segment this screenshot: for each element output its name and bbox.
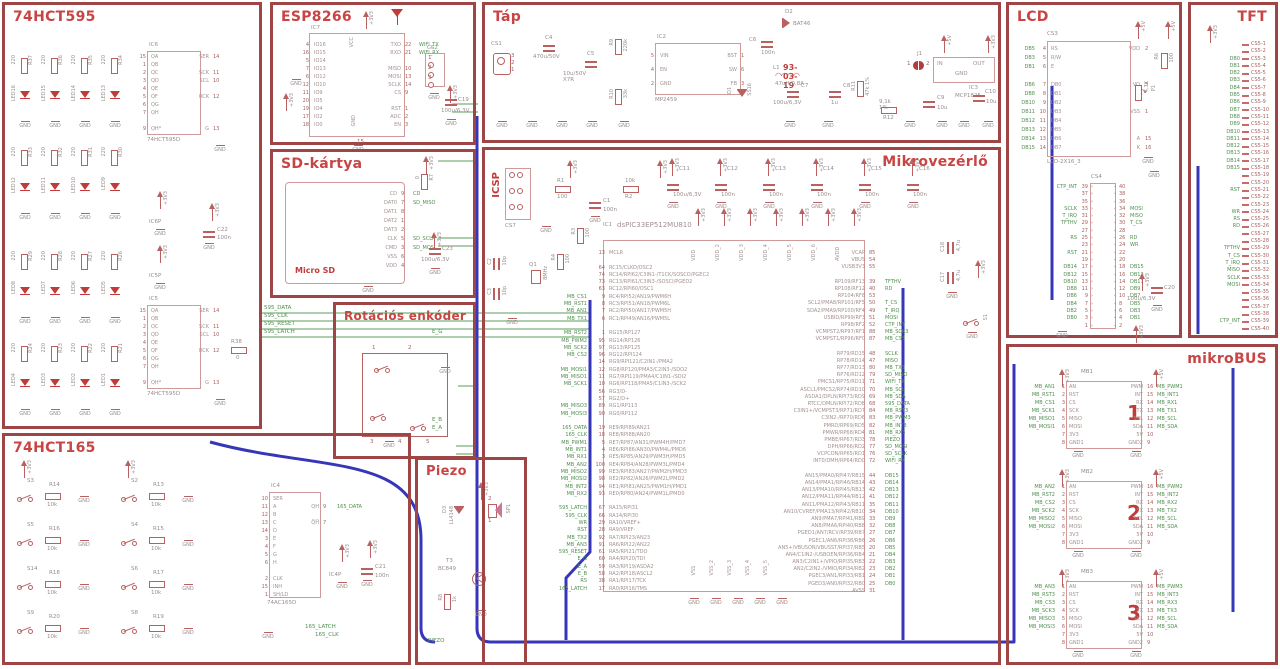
resistor-value: 10k: [151, 634, 161, 640]
gnd-symbol: GND: [953, 121, 975, 129]
pin-row: VCMPST2/RP97/RF188MB_SCK3: [745, 329, 945, 336]
cap-value: 10u: [986, 99, 996, 105]
cs1: CS1 3 2 1: [493, 53, 511, 75]
pin-row: RP104/RF853: [745, 293, 945, 300]
net-label: 595_RESET: [541, 549, 589, 556]
power-3v3-icon: +3V3: [971, 260, 987, 286]
cap-ref: C10: [985, 89, 996, 95]
pin-name: [285, 527, 321, 535]
pin-row: MB_AN391RA6/RPI22/AN22: [541, 542, 773, 549]
pin-number: 35: [1077, 199, 1089, 206]
c23: +3V3 C23 100u/6,3V GND: [429, 248, 441, 255]
ic-right-pins: SER14SCK11SCL10RCK12G13: [171, 307, 227, 387]
pin-name: IN: [937, 61, 943, 67]
resistor-value: 220: [71, 147, 77, 157]
gnd-symbol: GND: [177, 628, 199, 636]
pin-number: 14: [1118, 279, 1130, 286]
net-label: DB1: [1015, 63, 1035, 72]
net-label: DB1: [883, 573, 945, 580]
net-label: 595_CLK: [264, 312, 295, 320]
pin-number: 1: [1055, 483, 1066, 491]
resistor-value: 220: [41, 55, 47, 65]
pin-row: RSCS5-25: [1193, 216, 1277, 223]
pin-row: DB03›‹4DB1: [1043, 315, 1179, 322]
pin-name: C3IN2-/RP70/RD6: [745, 415, 867, 422]
pin-number: 43: [867, 480, 883, 487]
pin-row: USBID/RP99/RF351MOSI: [745, 315, 945, 322]
pad-icon: [1242, 168, 1249, 170]
net-label: MISO: [1130, 213, 1170, 220]
resistor-icon: [555, 186, 571, 193]
net-label: MB_RST1: [541, 301, 589, 308]
ic6: IC6 15QA1QB2QC3QD4QE5QF6QG7QH9QH* SER14S…: [135, 51, 259, 151]
net-label: DB6: [1193, 99, 1240, 106]
net-label: SD_SCLK: [883, 451, 945, 458]
net-label: CTP_INT: [1193, 318, 1240, 325]
pin-row: DB1215›‹16DB13: [1043, 272, 1179, 279]
pin-row: 8GND1GND29: [1009, 539, 1277, 547]
net-label: [541, 323, 589, 330]
r7: +3V3 0 R7: [421, 174, 428, 190]
pin-number: 72: [867, 458, 883, 465]
resistor-ref: R2: [625, 194, 632, 200]
pin-row: 73RC13/RPI61/C3IN3-/SOSCI/PGED2: [541, 279, 773, 286]
pin-row: MB_MOSI26MOSISDA11MB_SDA: [1009, 523, 1277, 531]
net-label: MB_TX2: [1157, 507, 1203, 515]
gnd-symbol: GND: [771, 598, 793, 606]
resistor-icon: [21, 254, 28, 270]
pin-number: 20: [295, 97, 311, 105]
net-label: WR: [1130, 242, 1170, 249]
pin-number: [211, 339, 227, 347]
pin-row: CS5-35: [1193, 289, 1277, 296]
net-label: MB_AN1: [1009, 383, 1055, 391]
pin-row: MB_MOSI36MOSISDA11MB_SDA: [1009, 623, 1277, 631]
pin-name: IO10: [311, 81, 326, 89]
cap-value: 100u/6,3V: [673, 192, 701, 198]
switch-ref: S9: [27, 610, 34, 616]
pin-number: 16: [1146, 483, 1157, 491]
q1: Q1 8MHz: [531, 270, 541, 284]
pad-icon: [1242, 117, 1249, 119]
pad-icon: [1242, 306, 1249, 308]
pad-icon: [1242, 87, 1249, 89]
cap-value: 100n: [761, 50, 775, 56]
capacitor-icon: [973, 95, 985, 102]
pin-number: CS5-26: [1251, 223, 1277, 230]
pin-number: 5: [135, 93, 148, 101]
cap-ref: C14: [823, 166, 834, 172]
resistor-icon: [21, 58, 28, 74]
pin-number: 12: [211, 93, 227, 101]
pin-row: DB1413DB6A15: [1015, 135, 1157, 144]
pin-number: 4: [1035, 45, 1048, 54]
pin-number: [211, 117, 227, 125]
net-label: [883, 343, 945, 350]
pin-name: C: [270, 519, 277, 527]
pin-number: 28: [1118, 228, 1130, 235]
pin-name: DB0: [1048, 81, 1077, 90]
net-label: MB_TX1: [1157, 407, 1203, 415]
pin-row: RP108/RF1240RD: [745, 286, 945, 293]
net-label: WIFI_RX: [883, 458, 945, 465]
block-74hct595: 74HCT595 220R37LED16GND220R36LED15GND220…: [2, 2, 262, 429]
pin-row: [285, 527, 409, 535]
pin-name: 5V: [1119, 631, 1146, 639]
c9: C9 10u: [923, 101, 935, 108]
net-label: PIEZO: [883, 437, 945, 444]
pin-number: 66: [589, 513, 607, 520]
net-label: DB14: [1193, 158, 1240, 165]
net-label: [1193, 289, 1240, 296]
net-label: MB_CS1: [1009, 399, 1055, 407]
pin-number: 27: [867, 530, 883, 537]
net-label: DB15: [1193, 165, 1240, 172]
transistor-name: BC849: [438, 566, 456, 572]
trimmer-value: 4,7K: [1144, 81, 1150, 92]
pin-name: RP108/RF12: [745, 286, 867, 293]
pin-name: MOSI: [343, 73, 403, 81]
pin-name: D: [270, 527, 277, 535]
pin-name: TX: [1119, 407, 1146, 415]
pin-row: DAT21: [285, 217, 475, 226]
pin-number: 10: [403, 65, 417, 73]
pin-number: 34: [1118, 206, 1130, 213]
led-ref: LED5: [101, 281, 107, 294]
gnd-symbol: GND: [1125, 551, 1147, 559]
pin-row: VCAP85: [745, 250, 945, 257]
pin-number: 14: [211, 53, 227, 61]
pin-row: DB5CS5-8: [1193, 92, 1277, 99]
pin-number: 80: [867, 365, 883, 372]
pin-name: G: [270, 551, 277, 559]
pin-number: [321, 543, 335, 551]
cap-ref: C2: [487, 258, 493, 265]
pin-number: 83: [867, 415, 883, 422]
pin-row: AN5+/VBUSON/VBUSST/RPI37/RB520DB5: [745, 545, 945, 552]
pin-number: 20: [1118, 257, 1130, 264]
pin-row: TFTHV29›‹30T_CS: [1043, 220, 1179, 227]
socket-list: +3V3 MB1 +5V 1 MB_AN11ANPWM16MB_PWM1MB_R…: [1009, 369, 1277, 669]
resistor-icon: [45, 537, 61, 544]
pin-number: 79: [867, 372, 883, 379]
net-label: [1130, 199, 1170, 206]
pin-row: CTP_INT39›‹40: [1043, 184, 1179, 191]
resistor-value: 0: [415, 176, 421, 179]
pin-row: RST28RA9/VREF-: [541, 527, 773, 534]
net-label: [1193, 311, 1240, 318]
pin-name: RX: [1119, 499, 1146, 507]
switch-icon: [17, 492, 33, 502]
pin-number: 16: [1146, 383, 1157, 391]
net-label: MB_MISO2: [1009, 515, 1055, 523]
pad-icon: [1242, 153, 1249, 155]
net-label: [1130, 184, 1170, 191]
pin-number: 4: [1055, 407, 1066, 415]
gnd-symbol: GND: [1051, 331, 1073, 339]
diode-icon: [454, 506, 464, 514]
net-label: MB_CS2: [1009, 499, 1055, 507]
pin-name: 3V3: [1066, 531, 1093, 539]
pin-number: 7: [135, 363, 148, 371]
pin-name: PGEC1/AN6/RPI38/RB6: [745, 538, 867, 545]
gnd-symbol: GND: [423, 93, 445, 101]
pin-number: CS5-31: [1251, 260, 1277, 267]
pin-name: [171, 85, 211, 93]
resistor-value: 9,1k 1%: [879, 99, 897, 111]
switch-ref: S4: [131, 522, 138, 528]
pin-number: CS5-19: [1251, 172, 1277, 179]
net-label: [1009, 439, 1055, 447]
connector-dot: [517, 204, 523, 210]
pin-number: 10: [1146, 631, 1157, 639]
pad-icon: [1242, 109, 1249, 111]
pin-row: 14RG9/RPI121/C2IN1-/PMA2: [541, 359, 773, 366]
pad-icon: [1242, 270, 1249, 272]
pin-number: [867, 272, 883, 279]
pin-row: 57RG2/D+: [541, 396, 773, 403]
pin-number: CS5-34: [1251, 282, 1277, 289]
gnd-symbol: GND: [44, 317, 66, 325]
resistor-ref: R10: [609, 89, 615, 99]
pin-row: [171, 109, 227, 117]
cap-ref: C20: [1164, 285, 1175, 291]
pin-number: 12: [1118, 286, 1130, 293]
net-label: [1043, 323, 1077, 330]
net-label: T_IRQ: [1043, 213, 1077, 220]
led-unit: 220R28LED7GND: [43, 251, 67, 331]
net-label: MB_MISO3: [1009, 615, 1055, 623]
led-unit: 220R37LED16GND: [13, 55, 37, 135]
cap-unit: +3V3C14100nGND: [809, 158, 841, 214]
led-unit: 220R36LED15GND: [43, 55, 67, 135]
pin-name: GND2: [1119, 439, 1146, 447]
cap-ref: C16: [919, 166, 930, 172]
pin-number: 22: [403, 41, 417, 49]
pin-number: CS5-17: [1251, 158, 1277, 165]
net-label: E_G: [541, 556, 589, 563]
pin-number: [321, 559, 335, 567]
net-label: 165_CLK: [315, 632, 339, 638]
net-label: [541, 286, 589, 293]
gnd-symbol: GND: [1125, 651, 1147, 659]
pin-number: 39: [1077, 184, 1089, 191]
resistor-icon: [51, 346, 58, 362]
pin-name: Q̅H̅: [285, 519, 321, 527]
pin-row: MB_RST32RSTINT15MB_INT3: [1009, 591, 1277, 599]
resistor-ref: R29: [28, 251, 34, 261]
resistor-value: 220: [71, 343, 77, 353]
resistor-icon: [45, 581, 61, 588]
pin-number: 4: [295, 41, 311, 49]
pin-name: [745, 466, 867, 473]
pin-number: 85: [867, 250, 883, 257]
net-label: WR: [1193, 209, 1240, 216]
cap-value: 100n: [913, 192, 927, 198]
pin-name: BST: [699, 49, 739, 63]
pin-row: PGEC1/AN6/RPI38/RB626DB6: [745, 538, 945, 545]
pin-number: 40: [1118, 184, 1130, 191]
net-label: E_B: [432, 417, 442, 423]
pin-row: PMCS1/RP75/RD1171WIFI_TX: [745, 379, 945, 386]
net-label: E_A: [432, 425, 442, 431]
pin-row: DB0CS5-3: [1193, 56, 1277, 63]
c7: C7 100u/6,3V: [787, 91, 799, 98]
pin-row: MB_PWM295RG14/RP126: [541, 338, 773, 345]
pin-number: CS5-2: [1251, 48, 1277, 55]
pin-number: 11: [211, 323, 227, 331]
net-label: [541, 272, 589, 279]
gnd-symbol: GND: [749, 598, 771, 606]
gnd-symbol: GND: [977, 121, 999, 129]
pad-icon: [1242, 146, 1249, 148]
resistor-value: 220: [41, 147, 47, 157]
net-label: TFTHV: [1043, 220, 1077, 227]
pin-number: [211, 371, 227, 379]
pad-icon: [1242, 314, 1249, 316]
net-label: MB_CS3: [883, 336, 945, 343]
pin-name: VSS: [285, 253, 399, 262]
pin-number: 54: [867, 257, 883, 264]
ic-ref: IC5: [149, 296, 158, 302]
cap-value: 100n: [217, 235, 231, 241]
net-label: DB8: [883, 523, 945, 530]
resistor-ref: R14: [49, 482, 60, 488]
pin-row: 23›‹24WR: [1043, 242, 1179, 249]
pin-row: CS5-27: [1193, 231, 1277, 238]
socket-ref: MB2: [1081, 469, 1093, 475]
net-label: [335, 495, 393, 503]
pin-number: 59: [589, 564, 607, 571]
gnd-symbol: GND: [14, 121, 36, 129]
pin-number: 12: [1146, 515, 1157, 523]
net-label: T_IRQ: [1193, 260, 1240, 267]
pin-number: 3: [1055, 499, 1066, 507]
pin-name: [1077, 99, 1143, 108]
pin-row: MB_CS33CSRX14MB_RX3: [1009, 599, 1277, 607]
resistor-icon: [81, 346, 88, 362]
pin-number: 11: [1146, 523, 1157, 531]
pin-number: 25: [867, 581, 883, 588]
pin-number: 92: [589, 535, 607, 542]
resistor-icon: [111, 346, 118, 362]
pin-row: MB_AN2100RE4/RP84/AN28/PWM3L/PMD4: [541, 462, 773, 469]
resistor-value: 220: [11, 55, 17, 65]
pin-number: CS5-38: [1251, 311, 1277, 318]
net-label: [1130, 228, 1170, 235]
resistor-ref: R16: [49, 526, 60, 532]
pin-name: PGED1/AN7/RCV/RP39/RB7: [745, 530, 867, 537]
gnd-symbol: GND: [209, 399, 231, 407]
trimmer-icon: [1135, 85, 1142, 101]
net-label: [1157, 639, 1203, 647]
cap-value: 470u/50V: [533, 54, 560, 60]
pin-name: [343, 97, 403, 105]
pin-number: 35: [867, 502, 883, 509]
pin-row: PMRD/RP69/RD582MB_INT3: [745, 423, 945, 430]
net-label: DB4: [1043, 301, 1077, 308]
resistor-icon: [149, 537, 165, 544]
pin-number: 1: [511, 67, 515, 73]
gnd-symbol: GND: [177, 584, 199, 592]
pin-number: 48: [867, 351, 883, 358]
pad-icon: [1242, 321, 1249, 323]
pin-number: 18: [1118, 264, 1130, 271]
pin-number: 8: [1055, 639, 1066, 647]
gnd-symbol: GND: [104, 409, 126, 417]
net-label: [1009, 431, 1055, 439]
pin-name: DB5: [1048, 126, 1077, 135]
net-label: MOSI: [1193, 282, 1240, 289]
block-title: SD-kártya: [281, 156, 362, 172]
pin-number: 12: [255, 511, 270, 519]
pin-name: A: [1077, 135, 1143, 144]
ic-ref: IC1: [603, 222, 612, 228]
pin-number: [589, 323, 607, 330]
pin-number: 47: [867, 358, 883, 365]
pin-number: 16: [1118, 272, 1130, 279]
pin-name: MISO: [1066, 615, 1093, 623]
net-label: DB11: [1015, 108, 1035, 117]
net-label: DB15: [1015, 144, 1035, 153]
pin-row: RTCC/DMLN/RPI72/RD868595_DATA: [745, 401, 945, 408]
cap-value: 100u/6,3V: [1127, 296, 1155, 302]
pin-row: WRCS5-24: [1193, 209, 1277, 216]
resistor-icon: [111, 150, 118, 166]
block-mikrobus: mikroBUS +3V3 MB1 +5V 1 MB_AN11ANPWM16MB…: [1006, 344, 1278, 665]
pin-row: MB_AN31ANPWM16MB_PWM3: [1009, 583, 1277, 591]
pin-name: CMD: [285, 244, 399, 253]
pin-name: MISO: [1066, 515, 1093, 523]
resistor-ref: R19: [153, 614, 164, 620]
net-label: CTP_INT: [1043, 184, 1077, 191]
pin-number: 5: [1055, 615, 1066, 623]
led-unit: 220R33LED12GND: [13, 147, 37, 227]
net-label: MB_SDA: [883, 394, 945, 401]
pin-number: 31: [867, 588, 883, 595]
microsd-label: Micro SD: [295, 266, 335, 275]
connector-dot: [428, 82, 434, 88]
switch-ref: S14: [27, 566, 38, 572]
resistor-value: 220: [71, 251, 77, 261]
pin-number: 44: [867, 473, 883, 480]
pin-number: 52: [867, 322, 883, 329]
pin-row: 165_CLK18RE8/RPI88/AN20: [541, 432, 773, 439]
net-label: DB4: [883, 552, 945, 559]
pin-number: [589, 418, 607, 425]
pin-number: 7: [1035, 81, 1048, 90]
pin-row: DB12CS5-15: [1193, 143, 1277, 150]
c17: C17 4,7u: [947, 272, 954, 284]
pin-row: DB7CS5-10: [1193, 107, 1277, 114]
pin-number: 42: [867, 487, 883, 494]
pin-name: QB: [148, 61, 158, 69]
pin-row: 4EN: [643, 63, 703, 77]
pin-name: QH: [285, 503, 321, 511]
pin-number: CS5-6: [1251, 77, 1277, 84]
pin-row: C3IN1+/VCMPST3/RP71/RD784MB_RST3: [745, 408, 945, 415]
pin-name: [171, 101, 211, 109]
pin-number: 71: [867, 379, 883, 386]
net-label: DB3: [883, 559, 945, 566]
resistor-ref: R1: [557, 178, 564, 184]
pin-number: 3: [589, 454, 607, 461]
pin-number: 2: [1055, 491, 1066, 499]
gnd-symbol: GND: [613, 121, 635, 129]
switch-ref: S1: [983, 314, 989, 320]
cap-ref: C4: [545, 35, 552, 41]
pin-number: 11: [255, 503, 270, 511]
